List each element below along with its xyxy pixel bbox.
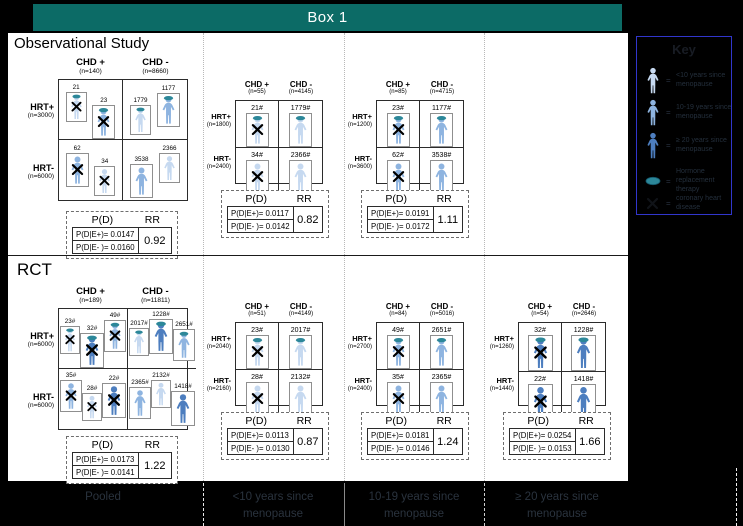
figure-count: 2366# xyxy=(291,152,310,159)
legend-title: Key xyxy=(637,42,731,57)
figure-count: 2017# xyxy=(291,327,310,334)
pd-header: P(D) xyxy=(227,193,285,205)
pd-unexposed-row: P(D|E- )= 0.0142 xyxy=(228,220,293,232)
person-medium-icon xyxy=(642,99,663,126)
person-icon xyxy=(83,335,101,366)
grid-cell: 2017#1228#2651# xyxy=(128,309,196,369)
chd-positive-header: CHD +(n=189) xyxy=(58,286,123,304)
grid-cell: 2366# xyxy=(279,148,322,194)
hrt-positive-label: HRT+(n=1260) xyxy=(484,335,514,351)
hrt-oval-icon xyxy=(437,116,446,120)
two-by-two-grid: 21#1779#34#2366# xyxy=(235,100,323,184)
person-icon xyxy=(645,67,661,94)
person-icon xyxy=(292,162,309,192)
main-panel: Observational Study CHD +(n=140)CHD -(n=… xyxy=(8,33,628,481)
person-figure: 2366# xyxy=(289,152,312,194)
legend-label: Hormone replacement therapy xyxy=(676,168,734,194)
figure-count: 21 xyxy=(73,84,80,91)
figure-count: 21# xyxy=(251,105,263,112)
chd-negative-header: CHD -(n=4149) xyxy=(279,302,323,317)
two-by-two-grid: 23#1177#62#3538# xyxy=(376,100,464,184)
figure-box xyxy=(129,328,149,356)
footer-separator xyxy=(344,483,345,526)
figure-count: 1418# xyxy=(574,376,593,383)
pd-exposed-row: P(D|E+)= 0.0147 xyxy=(73,228,138,241)
person-figure: 62 xyxy=(66,145,89,187)
person-figure: 1779 xyxy=(130,97,151,135)
figure-box xyxy=(149,319,173,354)
person-figure: 1177# xyxy=(430,105,453,147)
grid-cell: 35# xyxy=(377,370,420,416)
chd-negative-header: CHD -(n=8660) xyxy=(123,57,188,75)
pd-header: P(D) xyxy=(367,415,425,427)
legend-item: =coronary heart disease xyxy=(642,195,734,213)
section-observational: Observational Study CHD +(n=140)CHD -(n=… xyxy=(8,33,628,255)
probability-table: P(D)RRP(D|E+)= 0.0147P(D|E- )= 0.01600.9… xyxy=(66,211,178,259)
figure-count: 1177 xyxy=(162,85,176,92)
person-figure: 3538# xyxy=(430,152,453,194)
footer-separator xyxy=(484,483,485,526)
figure-box xyxy=(289,382,312,416)
hrt-oval-icon xyxy=(296,338,305,342)
figure-count: 1779# xyxy=(291,105,310,112)
grid-cell: 2365# xyxy=(420,370,463,416)
person-figure: 22# xyxy=(102,375,126,418)
person-figure: 49# xyxy=(104,312,126,352)
grid-cell: 35382366 xyxy=(123,140,187,200)
hrt-positive-label: HRT+(n=1200) xyxy=(344,113,372,129)
chd-positive-header: CHD +(n=140) xyxy=(58,57,123,75)
figure-count: 2132# xyxy=(152,372,170,379)
box-title: Box 1 xyxy=(307,9,347,26)
figure-box xyxy=(387,113,410,147)
legend-label: ≥ 20 years since menopause xyxy=(676,137,734,155)
person-icon xyxy=(249,162,266,192)
person-icon xyxy=(132,330,146,354)
equals-sign: = xyxy=(666,108,673,117)
grid-cell: 28# xyxy=(236,370,279,416)
person-icon xyxy=(249,337,266,367)
figure-box xyxy=(246,113,269,147)
section-rct: RCT CHD +(n=189)CHD -(n=11811)HRT+(n=600… xyxy=(8,256,628,481)
grid-cell: 1228# xyxy=(562,323,605,372)
figure-count: 2365# xyxy=(131,379,149,386)
person-icon xyxy=(107,322,123,350)
figure-box xyxy=(430,382,453,416)
hrt-oval-icon xyxy=(252,116,261,120)
hrt-positive-label: HRT+(n=2040) xyxy=(203,335,231,351)
person-figure: 23 xyxy=(92,97,115,139)
grid-cell: 23# xyxy=(236,323,279,370)
pd-header: P(D) xyxy=(72,439,133,451)
pd-unexposed-row: P(D|E- )= 0.0141 xyxy=(73,466,138,478)
legend-item: =<10 years since menopause xyxy=(642,67,734,94)
figure-count: 1228# xyxy=(152,311,170,318)
person-icon xyxy=(63,382,79,410)
pd-unexposed-row: P(D|E- )= 0.0172 xyxy=(368,220,433,232)
person-figure: 2132# xyxy=(289,374,312,416)
panel: CHD +(n=54)CHD -(n=2646)HRT+(n=1260)HRT-… xyxy=(484,256,628,481)
figure-box xyxy=(246,382,269,416)
pd-header: P(D) xyxy=(227,415,285,427)
two-by-two-grid: 23#32#49#2017#1228#2651#35#28#22#2365#21… xyxy=(58,308,188,430)
hrt-negative-label: HRT-(n=2400) xyxy=(203,155,231,171)
figure-box xyxy=(171,391,195,426)
rr-value: 1.24 xyxy=(434,429,462,454)
figure-box xyxy=(80,333,104,368)
figure-box xyxy=(387,382,410,416)
figure-box xyxy=(130,164,153,198)
hrt-oval-icon xyxy=(296,116,305,120)
equals-sign: = xyxy=(666,141,673,150)
person-icon xyxy=(95,107,112,137)
legend-item: =10-19 years since menopause xyxy=(642,99,734,126)
person-figure: 2651# xyxy=(430,327,453,369)
panel: CHD +(n=84)CHD -(n=5016)HRT+(n=2700)HRT-… xyxy=(344,256,484,481)
figure-box xyxy=(94,166,115,196)
hrt-oval-icon xyxy=(180,332,189,336)
footer-caption: <10 years since menopause xyxy=(213,489,333,524)
equals-sign: = xyxy=(666,177,673,186)
person-icon xyxy=(85,395,99,419)
figure-box xyxy=(387,335,410,369)
figure-count: 28# xyxy=(251,374,263,381)
pd-exposed-row: P(D|E+)= 0.0254 xyxy=(510,429,575,442)
person-figure: 21 xyxy=(66,84,87,122)
person-icon xyxy=(132,389,148,417)
rr-value: 1.11 xyxy=(434,207,462,232)
person-icon xyxy=(69,155,86,185)
person-figure: 62# xyxy=(387,152,410,194)
chd-negative-header: CHD -(n=2646) xyxy=(562,302,606,317)
chd-positive-header: CHD +(n=54) xyxy=(518,302,562,317)
person-figure: 35# xyxy=(60,372,82,412)
figure-count: 28# xyxy=(87,385,98,392)
person-icon xyxy=(105,385,123,416)
grid-cell: 1779# xyxy=(279,101,322,148)
legend-label: coronary heart disease xyxy=(676,195,734,213)
grid-cell: 49# xyxy=(377,323,420,370)
person-icon xyxy=(433,337,450,367)
chd-positive-header: CHD +(n=85) xyxy=(376,80,420,95)
probability-table: P(D)RRP(D|E+)= 0.0181P(D|E- )= 0.01461.2… xyxy=(361,412,469,460)
chd-negative-header: CHD -(n=4145) xyxy=(279,80,323,95)
grid-cell: 2123 xyxy=(59,80,123,140)
hrt-oval-icon xyxy=(642,176,663,186)
person-figure: 23# xyxy=(60,318,80,354)
figure-box xyxy=(571,335,596,371)
person-dark-icon xyxy=(642,132,663,159)
grid-cell: 62# xyxy=(377,148,420,194)
chd-positive-header: CHD +(n=84) xyxy=(376,302,420,317)
person-figure: 34# xyxy=(246,152,269,194)
person-figure: 2651# xyxy=(173,321,195,361)
figure-count: 2017# xyxy=(130,320,148,327)
person-figure: 32# xyxy=(80,325,104,368)
grid-cell: 34# xyxy=(236,148,279,194)
person-figure: 1418# xyxy=(171,383,195,426)
person-figure: 32# xyxy=(528,327,553,371)
person-figure: 2017# xyxy=(289,327,312,369)
chd-negative-header: CHD -(n=5016) xyxy=(420,302,464,317)
person-figure: 1228# xyxy=(149,311,173,354)
figure-box xyxy=(289,160,312,194)
figure-count: 34# xyxy=(251,152,263,159)
panel: CHD +(n=189)CHD -(n=11811)HRT+(n=6000)HR… xyxy=(8,256,203,481)
pd-unexposed-row: P(D|E- )= 0.0146 xyxy=(368,442,433,454)
person-icon xyxy=(176,331,192,359)
figure-count: 2651# xyxy=(175,321,193,328)
figure-count: 32# xyxy=(87,325,98,332)
figure-count: 23# xyxy=(251,327,263,334)
person-figure: 2132# xyxy=(151,372,171,408)
two-by-two-grid: 23#2017#28#2132# xyxy=(235,322,323,406)
person-figure: 23# xyxy=(387,105,410,147)
figure-box xyxy=(66,92,87,122)
hrt-positive-label: HRT+(n=6000) xyxy=(8,331,54,349)
chd-positive-header: CHD +(n=51) xyxy=(235,302,279,317)
person-icon xyxy=(390,162,407,192)
person-icon xyxy=(249,384,266,414)
legend-item: =≥ 20 years since menopause xyxy=(642,132,734,159)
figure-count: 2132# xyxy=(291,374,310,381)
figure-count: 1228# xyxy=(574,327,593,334)
person-figure: 28# xyxy=(246,374,269,416)
figure-box xyxy=(92,105,115,139)
figure-box xyxy=(104,320,126,352)
rr-header: RR xyxy=(285,193,323,205)
hrt-oval-icon xyxy=(578,337,588,342)
person-figure: 2365# xyxy=(129,379,151,419)
hrt-oval-icon xyxy=(156,322,166,327)
grid-cell: 3538# xyxy=(420,148,463,194)
figure-count: 3538 xyxy=(134,156,148,163)
person-icon xyxy=(152,321,170,352)
person-icon xyxy=(69,94,84,120)
person-icon xyxy=(433,384,450,414)
person-icon xyxy=(292,384,309,414)
person-icon xyxy=(433,115,450,145)
hrt-oval-icon xyxy=(164,96,173,100)
hrt-oval-icon xyxy=(99,108,108,112)
figure-count: 1418# xyxy=(174,383,192,390)
chd-positive-header: CHD +(n=55) xyxy=(235,80,279,95)
person-icon xyxy=(249,115,266,145)
figure-box xyxy=(130,105,151,135)
grid-cell: 2017# xyxy=(279,323,322,370)
footer-caption: 10-19 years since menopause xyxy=(354,489,474,524)
figure-box xyxy=(528,335,553,371)
hrt-oval-icon xyxy=(437,338,446,342)
person-icon xyxy=(645,99,661,126)
person-figure: 34 xyxy=(94,158,115,196)
person-figure: 2017# xyxy=(129,320,149,356)
figure-count: 34 xyxy=(101,158,108,165)
figure-canvas: Box 1 Observational Study CHD +(n=140)CH… xyxy=(0,0,743,526)
rr-header: RR xyxy=(285,415,323,427)
person-icon xyxy=(390,115,407,145)
figure-count: 35# xyxy=(66,372,77,379)
person-icon xyxy=(133,166,150,196)
figure-count: 62 xyxy=(74,145,81,152)
pd-unexposed-row: P(D|E- )= 0.0130 xyxy=(228,442,293,454)
figure-box xyxy=(66,153,89,187)
pd-header: P(D) xyxy=(72,214,133,226)
grid-cell: 21# xyxy=(236,101,279,148)
footer-separator xyxy=(736,468,737,526)
probability-table: P(D)RRP(D|E+)= 0.0254P(D|E- )= 0.01531.6… xyxy=(503,412,611,460)
figure-box xyxy=(129,387,151,419)
pd-exposed-row: P(D|E+)= 0.0173 xyxy=(73,453,138,466)
figure-box xyxy=(289,335,312,369)
grid-cell: 35#28#22# xyxy=(59,369,128,429)
figure-box xyxy=(289,113,312,147)
panel: CHD +(n=140)CHD -(n=8660)HRT+(n=3000)HRT… xyxy=(8,33,203,255)
person-icon xyxy=(292,115,309,145)
person-figure: 1177 xyxy=(157,85,180,127)
rr-header: RR xyxy=(133,439,172,451)
person-icon xyxy=(574,337,593,369)
person-figure: 3538 xyxy=(130,156,153,198)
figure-box xyxy=(430,160,453,194)
figure-count: 23 xyxy=(100,97,107,104)
pd-exposed-row: P(D|E+)= 0.0181 xyxy=(368,429,433,442)
figure-box xyxy=(159,153,180,183)
figure-box xyxy=(246,335,269,369)
legend: Key =<10 years since menopause=10-19 yea… xyxy=(636,36,732,215)
probability-table: P(D)RRP(D|E+)= 0.0173P(D|E- )= 0.01411.2… xyxy=(66,436,178,484)
rr-header: RR xyxy=(425,193,463,205)
pd-exposed-row: P(D|E+)= 0.0191 xyxy=(368,207,433,220)
rr-value: 1.66 xyxy=(576,429,604,454)
hrt-positive-label: HRT+(n=1800) xyxy=(203,113,231,129)
figure-box xyxy=(173,329,195,361)
hrt-negative-label: HRT-(n=2400) xyxy=(344,377,372,393)
figure-box xyxy=(60,380,82,412)
footer-separator xyxy=(203,483,204,526)
hrt-oval-icon xyxy=(535,337,545,342)
two-by-two-grid: 49#2651#35#2365# xyxy=(376,322,464,406)
hrt-negative-label: HRT-(n=1440) xyxy=(484,377,514,393)
person-icon xyxy=(174,393,192,424)
rr-header: RR xyxy=(133,214,172,226)
figure-count: 32# xyxy=(534,327,546,334)
grid-cell: 23#32#49# xyxy=(59,309,128,369)
equals-sign: = xyxy=(666,199,673,208)
pd-exposed-row: P(D|E+)= 0.0113 xyxy=(228,429,293,442)
two-by-two-grid: 212317791177623435382366 xyxy=(58,79,188,201)
person-icon xyxy=(160,95,177,125)
hrt-oval-icon xyxy=(135,330,143,334)
hrt-negative-label: HRT-(n=2160) xyxy=(203,377,231,393)
figure-box xyxy=(151,380,171,408)
probability-table: P(D)RRP(D|E+)= 0.0191P(D|E- )= 0.01721.1… xyxy=(361,190,469,238)
person-figure: 35# xyxy=(387,374,410,416)
hrt-oval-icon xyxy=(393,338,402,342)
person-icon xyxy=(390,337,407,367)
grid-cell: 2132# xyxy=(279,370,322,416)
grid-cell: 32# xyxy=(519,323,562,372)
hrt-positive-label: HRT+(n=3000) xyxy=(8,102,54,120)
figure-box xyxy=(430,113,453,147)
person-figure: 2366 xyxy=(159,145,180,183)
hrt-oval-icon xyxy=(87,336,97,341)
rr-header: RR xyxy=(425,415,463,427)
figure-count: 22# xyxy=(109,375,120,382)
figure-box xyxy=(157,93,180,127)
pd-exposed-row: P(D|E+)= 0.0117 xyxy=(228,207,293,220)
legend-label: <10 years since menopause xyxy=(676,72,734,90)
equals-sign: = xyxy=(666,76,673,85)
person-figure: 1228# xyxy=(571,327,596,371)
hrt-negative-label: HRT-(n=6000) xyxy=(8,163,54,181)
person-light-icon xyxy=(642,67,663,94)
person-figure: 1779# xyxy=(289,105,312,147)
footer-caption: Pooled xyxy=(28,489,178,506)
pd-header: P(D) xyxy=(509,415,567,427)
panel: CHD +(n=55)CHD -(n=4145)HRT+(n=1800)HRT-… xyxy=(203,33,344,255)
person-icon xyxy=(154,382,168,406)
probability-table: P(D)RRP(D|E+)= 0.0117P(D|E- )= 0.01420.8… xyxy=(221,190,329,238)
grid-cell: 2651# xyxy=(420,323,463,370)
person-figure: 2365# xyxy=(430,374,453,416)
rr-value: 0.92 xyxy=(139,228,171,253)
figure-count: 49# xyxy=(392,327,404,334)
figure-box xyxy=(82,393,102,421)
figure-count: 1779 xyxy=(133,97,147,104)
grid-cell: 2365#2132#1418# xyxy=(128,369,196,429)
person-icon xyxy=(162,155,177,181)
hrt-positive-label: HRT+(n=2700) xyxy=(344,335,372,351)
hrt-oval-icon xyxy=(111,323,120,327)
person-figure: 28# xyxy=(82,385,102,421)
pd-header: P(D) xyxy=(367,193,425,205)
rr-value: 0.87 xyxy=(294,429,322,454)
hrt-negative-label: HRT-(n=6000) xyxy=(8,392,54,410)
person-icon xyxy=(63,328,77,352)
figure-count: 62# xyxy=(392,152,404,159)
grid-cell: 17791177 xyxy=(123,80,187,140)
person-icon xyxy=(390,384,407,414)
person-icon xyxy=(97,168,112,194)
hrt-oval-icon xyxy=(393,116,402,120)
rr-value: 0.82 xyxy=(294,207,322,232)
chd-x-icon xyxy=(642,197,663,210)
figure-count: 3538# xyxy=(432,152,451,159)
figure-count: 2651# xyxy=(432,327,451,334)
figure-count: 2366 xyxy=(162,145,176,152)
person-icon xyxy=(292,337,309,367)
figure-count: 2365# xyxy=(432,374,451,381)
pd-unexposed-row: P(D|E- )= 0.0153 xyxy=(510,442,575,454)
hrt-oval-icon xyxy=(136,108,144,112)
figure-box xyxy=(246,160,269,194)
hrt-oval-icon xyxy=(252,338,261,342)
rr-value: 1.22 xyxy=(139,453,171,478)
panel: CHD +(n=51)CHD -(n=4149)HRT+(n=2040)HRT-… xyxy=(203,256,344,481)
panel: CHD +(n=85)CHD -(n=4715)HRT+(n=1200)HRT-… xyxy=(344,33,484,255)
pd-unexposed-row: P(D|E- )= 0.0160 xyxy=(73,241,138,253)
figure-box xyxy=(430,335,453,369)
person-icon xyxy=(645,132,661,159)
hrt-oval-icon xyxy=(66,328,74,332)
figure-count: 35# xyxy=(392,374,404,381)
grid-cell: 23# xyxy=(377,101,420,148)
probability-table: P(D)RRP(D|E+)= 0.0113P(D|E- )= 0.01300.8… xyxy=(221,412,329,460)
footer-caption: ≥ 20 years since menopause xyxy=(497,489,617,524)
person-figure: 21# xyxy=(246,105,269,147)
figure-count: 22# xyxy=(534,376,546,383)
